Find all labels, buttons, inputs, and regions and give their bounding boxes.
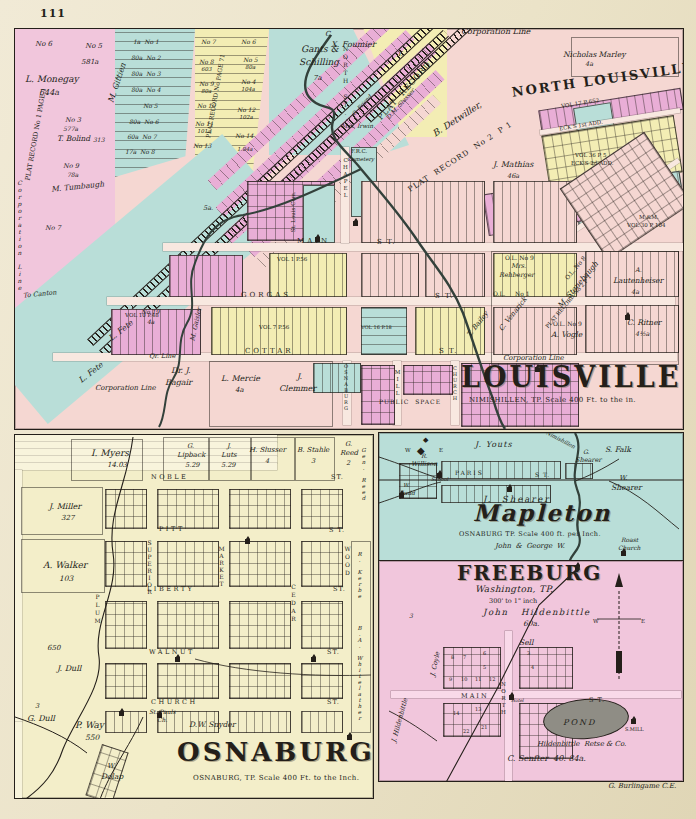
parcel-outline (21, 487, 103, 535)
parcel-outline (295, 437, 335, 481)
map-label: S.MILL (625, 727, 644, 732)
town-block (441, 461, 561, 479)
map-label: 46a (507, 173, 519, 180)
map-label: John Hildenbittle (483, 608, 591, 617)
map-label: J. Hildenbittle (391, 697, 409, 743)
freeburg-map: FREEBURG Washington, TP. 300' to 1" inch… (378, 560, 684, 782)
osnaburg-title: OSNABURG (177, 739, 374, 765)
town-block (229, 711, 291, 733)
map-label: Roast (621, 537, 638, 543)
road-path (609, 481, 679, 529)
town-block (211, 307, 347, 355)
building-icon (625, 315, 630, 320)
parcel-outline (71, 439, 143, 481)
town-block (415, 307, 485, 355)
church-icon (353, 221, 358, 226)
surveyor-credit: G. Burlingame C.E. (608, 783, 676, 790)
louisville-map: LOUISVILLE NIMISHILLEN, TP. Scale 400 Ft… (14, 28, 684, 430)
school-icon (437, 473, 442, 478)
road-path (389, 711, 437, 741)
map-label: R. (421, 453, 427, 459)
creek-path (569, 433, 580, 561)
town-block (111, 309, 201, 355)
map-label: S. Falk (605, 446, 631, 454)
map-label: 3 (35, 703, 39, 710)
plat-region (115, 29, 195, 177)
map-label: WOOD (344, 545, 350, 577)
map-label: 550 (85, 734, 99, 742)
town-block (169, 255, 243, 297)
parcel-outline (21, 539, 105, 593)
town-block (301, 541, 343, 587)
town-block (361, 365, 395, 425)
town-block (565, 463, 593, 479)
mapleton-title: Mapleton (473, 501, 612, 524)
mill-icon (631, 719, 636, 724)
plate-number: 111 (40, 8, 66, 19)
town-block (399, 463, 437, 499)
map-label: 300' to 1" inch (489, 598, 537, 605)
louisville-title: LOUISVILLE (461, 362, 681, 391)
street-superior (15, 722, 22, 799)
building-icon (245, 539, 250, 544)
town-block (425, 253, 485, 297)
mapleton-subtitle: OSNABURG TP. Scale 400 ft. per Inch. (459, 531, 601, 538)
town-block (105, 711, 147, 733)
map-label: Little Nimishillen (529, 432, 576, 450)
town-block (269, 253, 347, 297)
town-block (229, 663, 291, 699)
town-block (229, 489, 291, 529)
church-icon (157, 713, 162, 718)
mapleton-map: Mapleton OSNABURG TP. Scale 400 ft. per … (378, 432, 684, 562)
map-label: P. Way (75, 721, 104, 730)
freeburg-title: FREEBURG (457, 563, 602, 583)
map-label: W (405, 448, 411, 454)
parcel-outline (491, 251, 679, 365)
parcel-outline (351, 541, 371, 733)
town-block (361, 181, 485, 243)
street-chapel (341, 147, 349, 243)
church-icon (507, 487, 512, 492)
town-block (301, 663, 343, 699)
town-block (229, 601, 291, 649)
town-block (519, 647, 573, 689)
map-label: Corporation Line (461, 28, 530, 36)
map-label: Bagair (165, 379, 192, 387)
town-block (301, 601, 343, 649)
map-label: 650 (47, 645, 60, 652)
osnaburg-subtitle: OSNABURG, TP. Scale 400 Ft. to the Inch. (193, 775, 359, 782)
map-label: WALNUT (149, 649, 195, 656)
map-label: Dr. J. (171, 367, 191, 375)
osnaburg-map: OSNABURG OSNABURG, TP. Scale 400 Ft. to … (14, 434, 374, 799)
town-block (361, 307, 407, 355)
map-label: ◆ (417, 446, 425, 456)
parcel-outline (209, 437, 251, 481)
building-icon (509, 695, 514, 700)
town-block (443, 647, 501, 689)
street-north (505, 631, 512, 781)
map-label: J. Youts (475, 441, 513, 449)
town-block (105, 601, 147, 649)
town-block (157, 601, 219, 649)
town-block (105, 489, 147, 529)
church-icon (119, 711, 124, 716)
map-label: ST. (327, 649, 340, 656)
street-main (391, 691, 681, 698)
road-path (15, 717, 87, 753)
map-label: W (593, 619, 599, 625)
map-label: PLUM (94, 593, 100, 625)
atlas-sheet: 111 (0, 0, 696, 819)
parcel-outline (571, 37, 679, 77)
town-block (157, 663, 219, 699)
map-label: John & George W. (495, 543, 565, 550)
parcel-outline (209, 361, 333, 427)
town-block (157, 711, 219, 733)
church-icon (315, 237, 320, 242)
map-label: 60a. (523, 620, 539, 628)
map-label: ST. (327, 699, 340, 706)
town-block (301, 489, 343, 529)
map-label: W. (619, 475, 627, 482)
church-icon (175, 657, 180, 662)
town-block (105, 663, 147, 699)
town-block (105, 541, 147, 587)
map-label: 2 (346, 460, 350, 467)
town-block (403, 365, 453, 395)
map-label: Reed (340, 450, 358, 457)
map-label: J. Mathias (493, 161, 533, 169)
town-block (157, 489, 219, 529)
louisville-subtitle: NIMISHILLEN, TP. Scale 400 Ft. to the in… (469, 397, 636, 404)
map-label: Gen. Reed (360, 447, 366, 501)
town-block (301, 711, 343, 733)
map-label: 3 (409, 613, 413, 619)
freeburg-subtitle: Washington, TP. (475, 585, 553, 594)
town-block (157, 541, 219, 587)
town-block (443, 703, 501, 737)
compass-rose (597, 573, 641, 679)
parcel-outline (163, 437, 209, 481)
church-icon (621, 551, 626, 556)
town-block (361, 253, 419, 297)
map-label: G. Dull (27, 715, 55, 723)
map-label: Shearer (611, 484, 642, 492)
town-block (229, 541, 291, 587)
map-label: G. (345, 441, 352, 448)
map-label: E (439, 448, 443, 454)
map-label: G. (583, 449, 590, 455)
church-icon (311, 657, 316, 662)
map-label: E (641, 619, 645, 625)
map-label: J. Dull (57, 665, 81, 673)
map-label: ◆ (423, 437, 428, 444)
map-label: CHURCH (151, 699, 198, 706)
parcel-outline (251, 437, 295, 481)
map-label: Corporation Line (95, 385, 156, 392)
map-label: Sell (519, 639, 533, 647)
map-label: J. Coyle (430, 651, 441, 677)
church-icon (399, 493, 404, 498)
town-block (85, 744, 128, 799)
